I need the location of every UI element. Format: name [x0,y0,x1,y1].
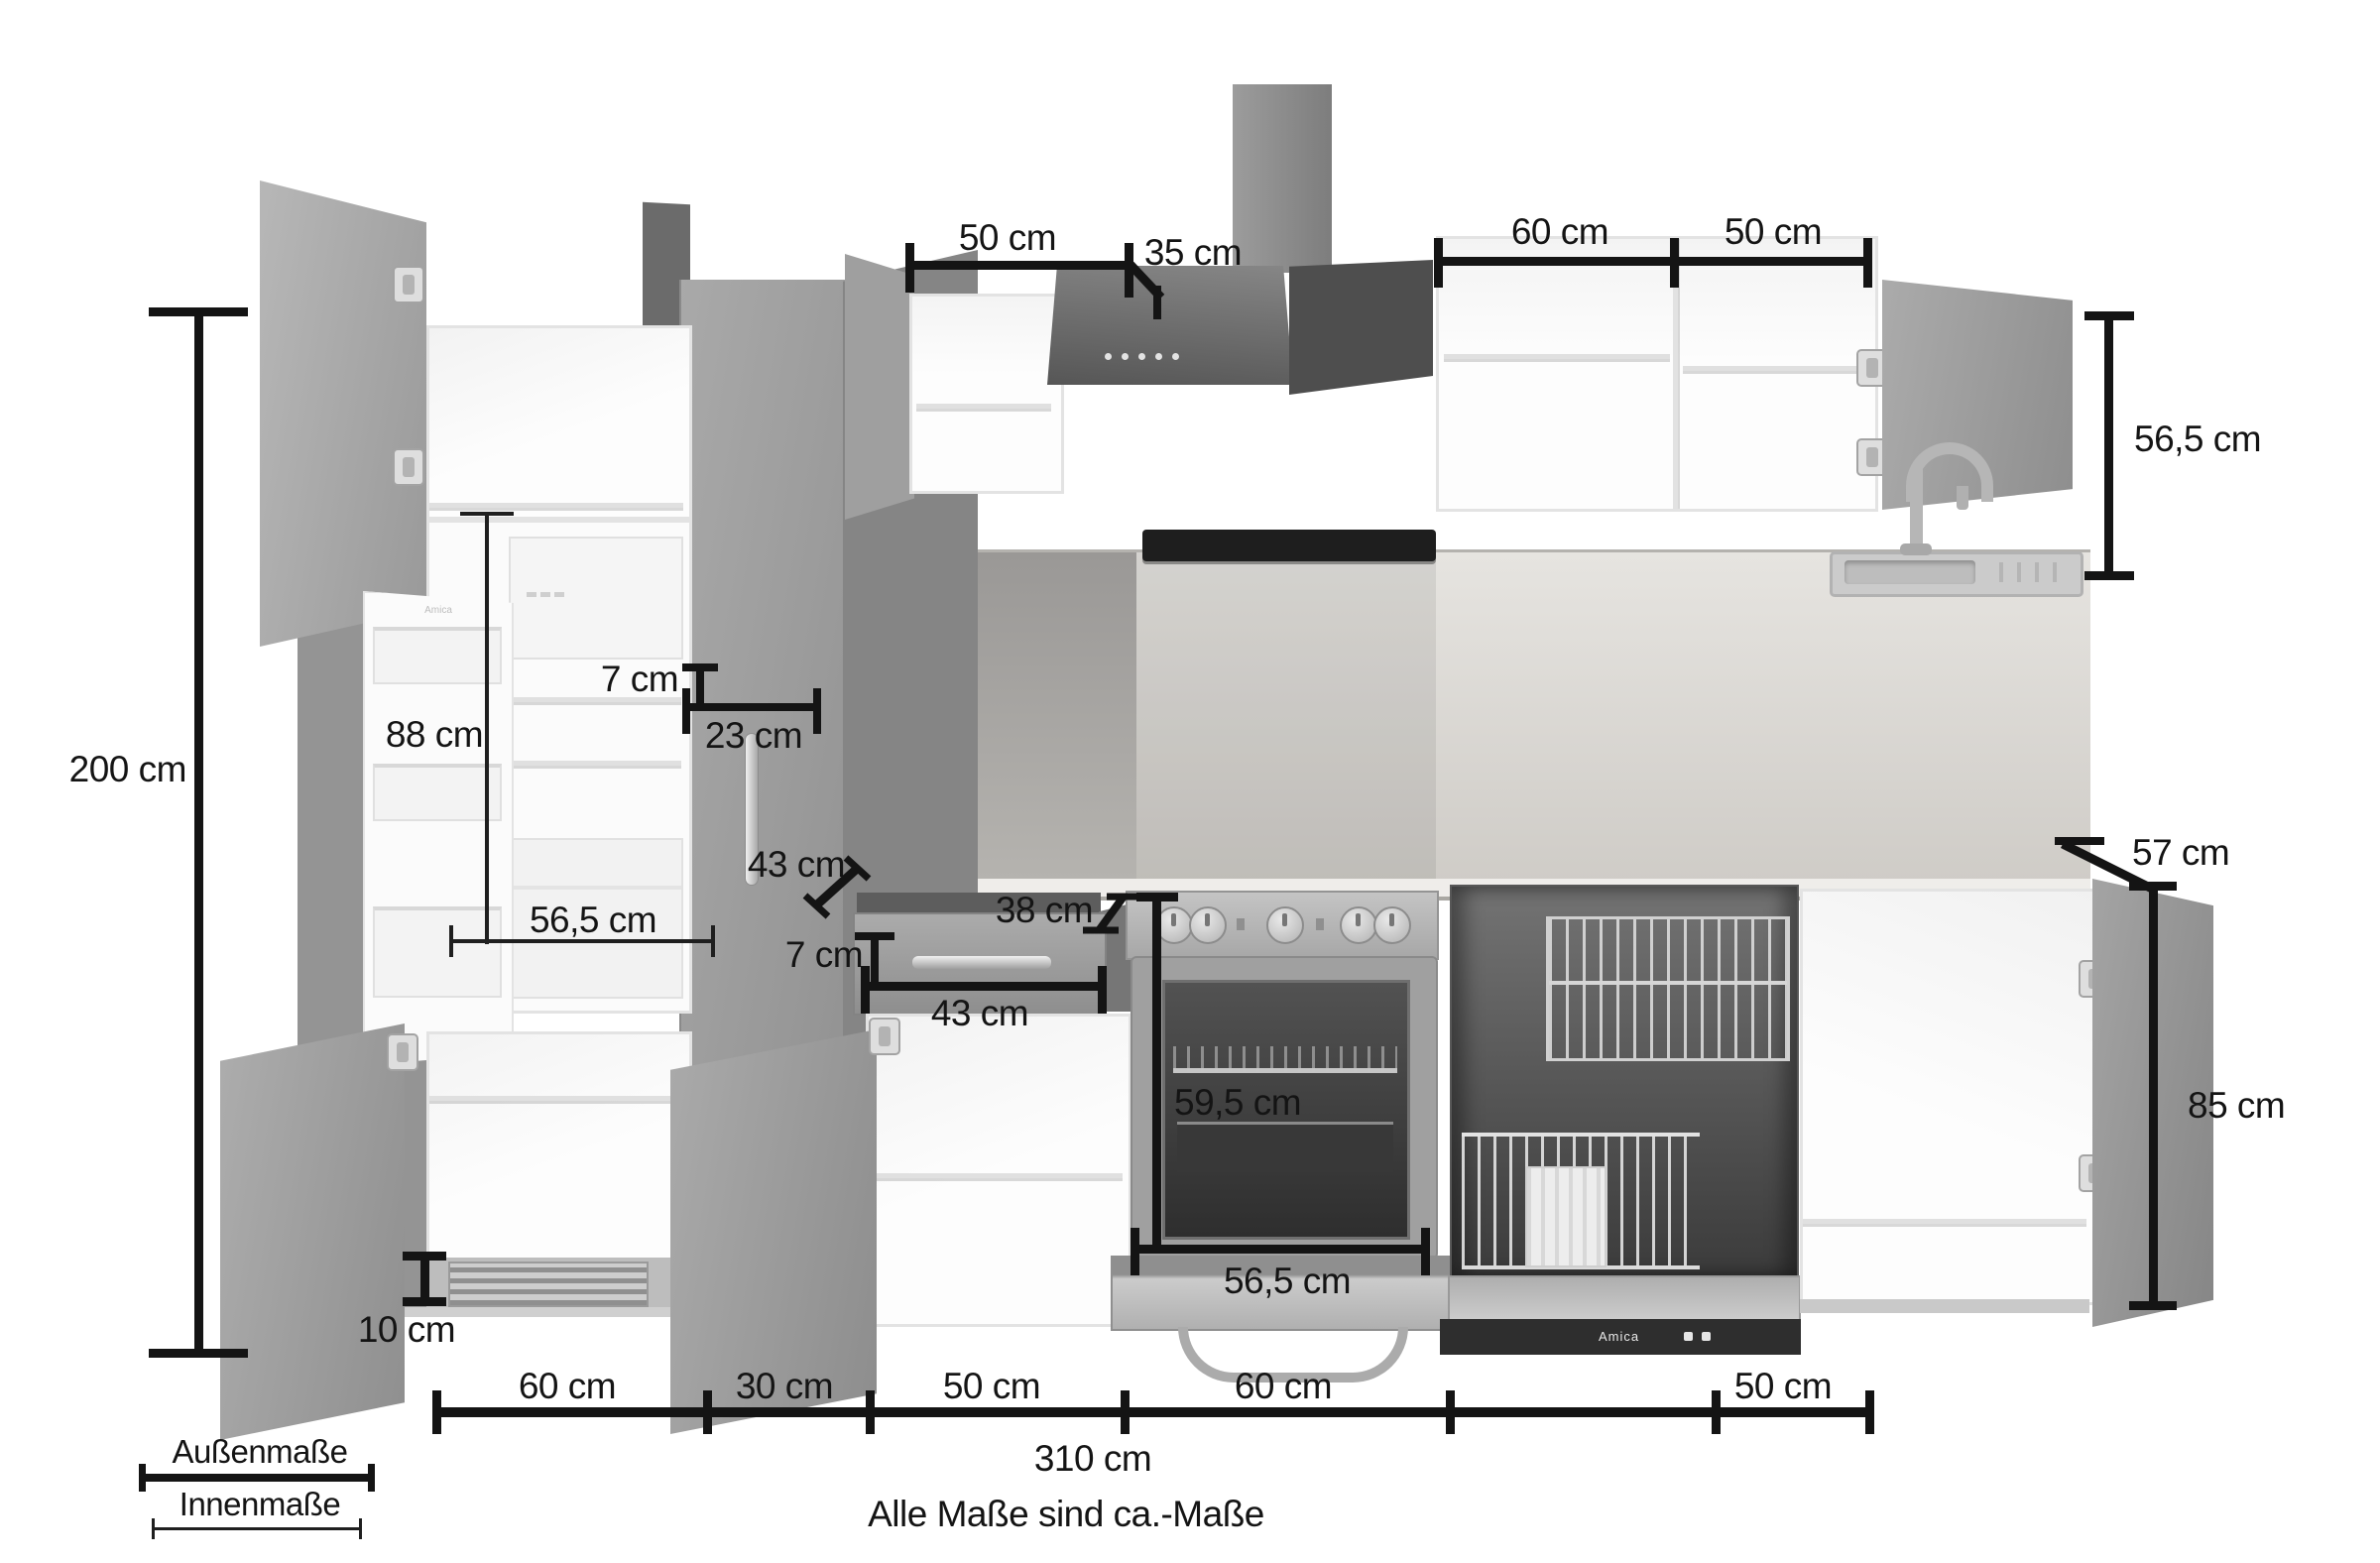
dim-wall-left-line [905,261,1133,270]
dim-wall-right-50-label: 50 cm [1704,213,1843,252]
dim-oven-width-tick-right [1421,1228,1430,1275]
dim-wall-height-line [2104,315,2113,579]
dim-wall-right-line [1434,257,1872,266]
dim-wall-right-tick-mid [1670,238,1679,288]
dim-total-height-tick-top [149,307,248,316]
dim-total-height-label: 200 cm [8,751,186,789]
dim-base-height-tick-bottom [2129,1301,2177,1310]
bottom-scale-tick [432,1390,441,1434]
dim-pantry-width-label: 23 cm [689,717,818,756]
legend-inner-tick-right [359,1518,362,1539]
bottom-segment-label: 50 cm [922,1368,1061,1406]
dim-fridge-height-tick [460,512,514,516]
dim-hood-depth-label: 35 cm [1124,234,1262,273]
legend-outer-line [139,1474,375,1482]
footnote: Alle Maße sind ca.-Maße [764,1496,1368,1534]
bottom-scale-tick [1446,1390,1455,1434]
dim-wall-height-tick-bottom [2084,571,2134,580]
dim-drawer-width-label: 43 cm [910,995,1049,1033]
dim-drawer-depth-label: 38 cm [975,892,1114,930]
dim-wall-height-label: 56,5 cm [2134,421,2332,459]
dim-top-reveal-label: 7 cm [590,661,689,699]
dim-wall-left-tick-left [905,243,914,293]
bottom-scale-tick [1121,1390,1130,1434]
dim-total-height-tick-bottom [149,1349,248,1358]
dim-pantry-width-line [682,703,821,711]
bottom-segment-label: 50 cm [1714,1368,1852,1406]
dim-wall-height-tick-top [2084,311,2134,320]
dim-plinth-label: 10 cm [347,1311,466,1350]
dim-oven-width-label: 56,5 cm [1203,1262,1371,1301]
dim-oven-width-line [1130,1245,1430,1254]
dim-drawer-width-line [861,982,1107,991]
legend-inner-label: Innenmaße [141,1488,379,1522]
dim-fridge-width-tick-right [711,925,715,957]
bottom-segment-label: 30 cm [715,1368,854,1406]
bottom-scale-line [432,1407,1874,1417]
dim-oven-width-tick-left [1130,1228,1139,1275]
bottom-segment-label: 60 cm [498,1368,637,1406]
bottom-scale-tick [866,1390,875,1434]
dim-wall-right-tick-right [1863,238,1872,288]
dim-total-height-line [194,311,203,1355]
dim-oven-height-label: 59,5 cm [1174,1084,1343,1123]
bottom-scale-tick [703,1390,712,1434]
dim-fridge-height-label: 88 cm [375,716,494,755]
dim-oven-height-line [1152,896,1161,1251]
dim-plinth-tick-bottom [403,1297,446,1306]
bottom-segment-label: 60 cm [1214,1368,1353,1406]
total-width-label: 310 cm [999,1440,1187,1479]
dim-base-height-line [2149,886,2158,1310]
dim-oven-height-tick [1136,893,1178,902]
dim-wall-left-label: 50 cm [938,219,1077,258]
dim-worktop-depth-label: 57 cm [2132,834,2291,873]
kitchen-dimension-diagram: Amica [0,0,2380,1563]
dim-drawer-width-tick-right [1098,966,1107,1014]
legend-inner-line [152,1527,362,1530]
legend-outer-label: Außenmaße [141,1435,379,1470]
dim-wall-right-60-label: 60 cm [1490,213,1629,252]
dim-fridge-width-tick-left [449,925,453,957]
dim-base-height-tick-top [2129,882,2177,891]
dim-base-height-label: 85 cm [2188,1087,2346,1126]
dim-wall-right-tick-left [1434,238,1443,288]
dim-drawer-width-tick-left [861,966,870,1014]
legend-inner-tick-left [152,1518,155,1539]
bottom-scale-tick [1865,1390,1874,1434]
dim-pantry-depth-label: 43 cm [732,846,861,885]
dim-fridge-width-label: 56,5 cm [519,902,667,940]
